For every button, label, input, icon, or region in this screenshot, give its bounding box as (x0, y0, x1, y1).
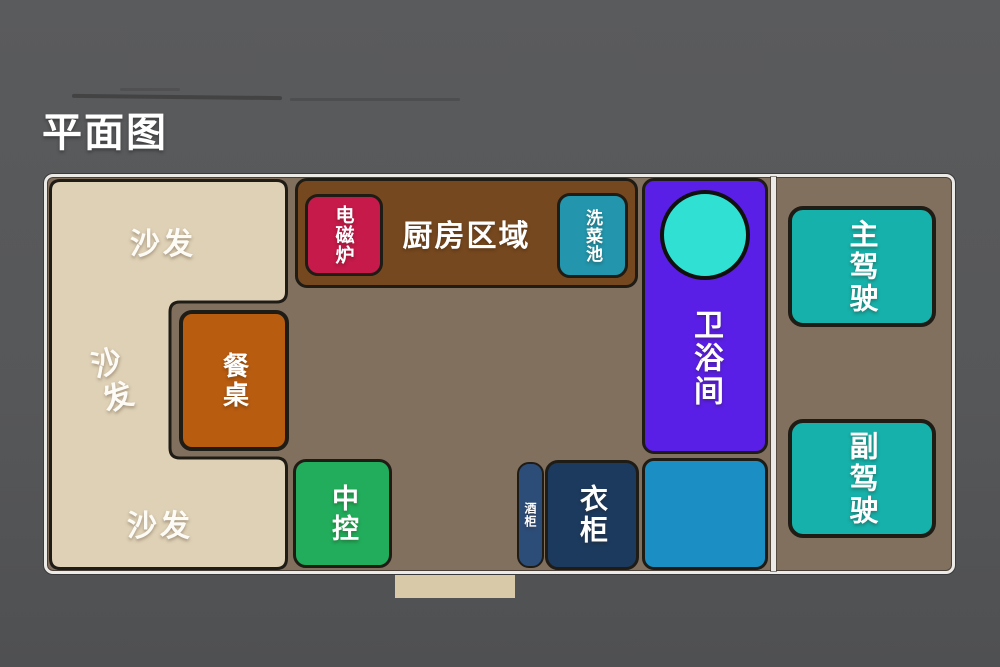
bathroom: 卫浴间 (642, 178, 768, 454)
kitchen-sink-label: 洗菜池 (580, 209, 605, 263)
watermark-smudge (290, 98, 460, 101)
floor-plan: 沙发 沙发 沙发 厨房区域 电磁炉 洗菜池 卫浴间 主驾驶 副驾驶 餐桌 中控 … (44, 174, 955, 574)
induction-cooker: 电磁炉 (305, 194, 383, 276)
cab-divider-wall (771, 177, 776, 571)
wine-cabinet: 酒柜 (517, 462, 544, 568)
kitchen-label: 厨房区域 (403, 211, 531, 255)
watermark-smudge (120, 88, 180, 91)
page-title: 平面图 (42, 100, 168, 158)
induction-cooker-label: 电磁炉 (331, 205, 358, 265)
wardrobe: 衣柜 (545, 460, 639, 570)
kitchen-sink: 洗菜池 (557, 193, 628, 278)
driver-seat-label: 主驾驶 (841, 219, 883, 315)
control-console: 中控 (293, 459, 392, 568)
driver-seat: 主驾驶 (788, 206, 936, 327)
co-driver-seat-label: 副驾驶 (841, 431, 883, 527)
wine-cabinet-label: 酒柜 (522, 502, 539, 528)
sofa-label-top: 沙发 (130, 219, 196, 263)
storage-box (642, 458, 768, 570)
control-console-label: 中控 (323, 484, 362, 544)
wardrobe-label: 衣柜 (572, 484, 612, 546)
co-driver-seat: 副驾驶 (788, 419, 936, 538)
dining-table: 餐桌 (179, 310, 289, 451)
dining-table-label: 餐桌 (216, 352, 253, 410)
entry-step (395, 575, 515, 598)
bathroom-label: 卫浴间 (683, 309, 727, 408)
toilet-circle-icon (660, 190, 750, 280)
sofa-label-bottom: 沙发 (127, 501, 193, 545)
